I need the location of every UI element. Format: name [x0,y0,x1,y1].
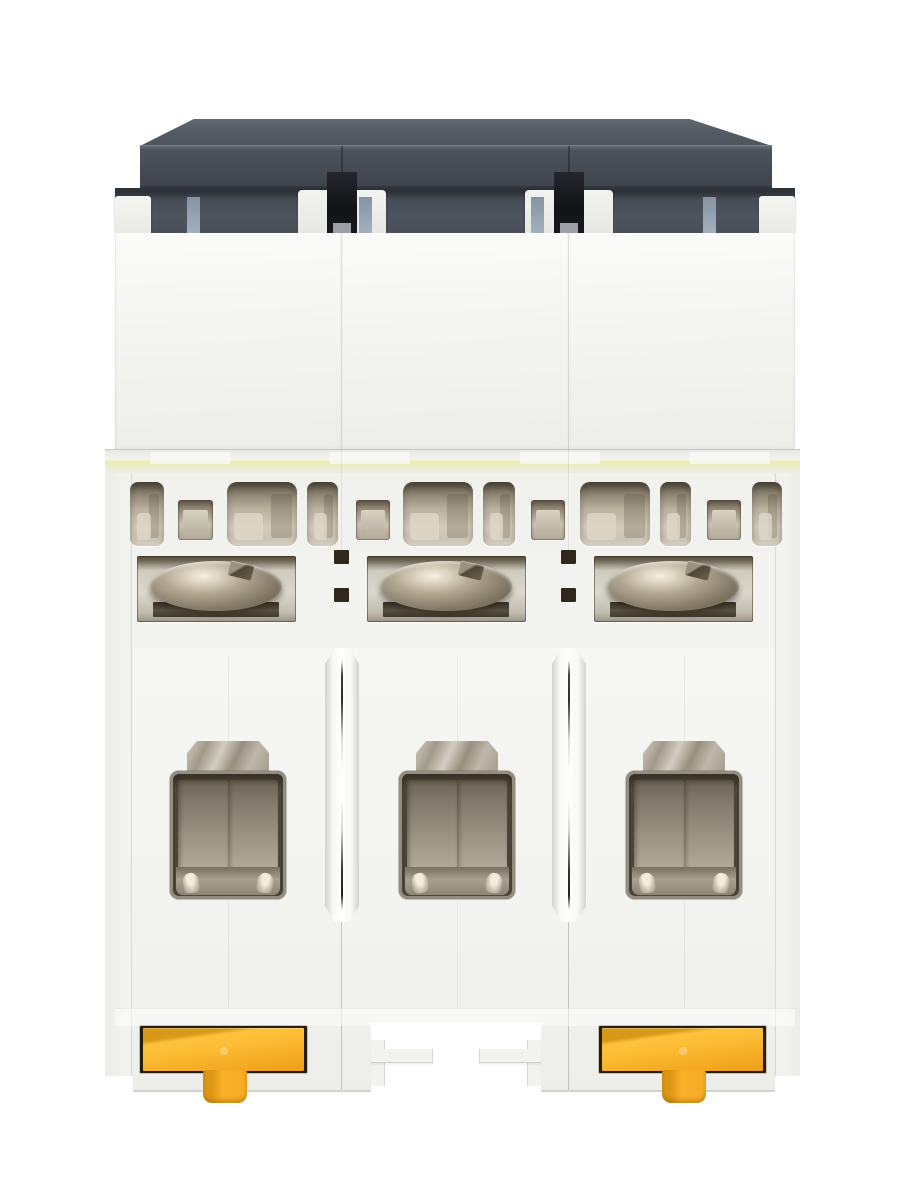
din-clip-left [143,1028,304,1071]
alignment-tab [359,197,372,233]
rail-end-left [105,1076,133,1116]
slot-opening-medium [660,482,691,546]
terminal-screw-head [150,561,282,611]
mold-seam [228,655,229,741]
square-opening [531,500,565,540]
terminal-screw-head [380,561,512,611]
ledge-tab [150,452,230,464]
top-cover-bar [140,145,772,188]
square-opening [178,500,213,540]
terminal-screw-recess [594,556,753,622]
side-rail-right [775,473,800,1076]
din-hook-right [479,1049,541,1063]
slot-opening-large [403,482,473,546]
terminal-cage-base [405,867,509,895]
pole-seam-lower [341,922,342,1090]
slot-opening-medium [752,482,782,546]
top-cover-base [115,188,795,233]
terminal-cage [170,771,286,899]
terminal-cage [626,771,742,899]
housing-corner-tab [115,196,151,233]
terminal-cage-base [632,867,736,895]
terminal-screw-head [607,561,739,611]
ledge-tab [520,452,600,464]
terminal-clamp-plate [187,741,269,774]
side-rail-left [105,473,132,1076]
terminal-cage-base [176,867,280,895]
divider-slot-line [341,660,343,910]
terminal-cage [399,771,515,899]
divider-pin [561,550,576,564]
alignment-tab [703,197,716,233]
mold-seam [228,902,229,1008]
pole-seam-lower [568,922,569,1090]
slot-opening-medium [130,482,164,546]
divider-pin [334,588,349,602]
pole-housing-upper-2 [342,233,569,449]
top-cover-face [140,119,772,146]
rail-end-right [775,1076,800,1116]
divider-pin [334,550,349,564]
mold-seam [684,655,685,741]
terminal-clamp-plate [643,741,725,774]
terminal-screw-recess [367,556,526,622]
mold-seam [457,902,458,1008]
breaker-photo [0,0,900,1200]
slot-opening-large [580,482,650,546]
housing-corner-tab [759,196,795,233]
mold-seam [457,655,458,741]
pole-housing-upper-1 [115,233,342,449]
pole-seam [568,449,569,552]
divider-slot-line [568,660,570,910]
pole-seam [341,449,342,552]
din-hook-right-stem [527,1040,541,1086]
mold-seam [684,902,685,1008]
square-opening [356,500,390,540]
slot-opening-large [227,482,297,546]
din-clip-right-tab [662,1070,706,1103]
din-clip-left-tab [203,1070,247,1103]
ledge-tab [330,452,410,464]
terminal-clamp-plate [416,741,498,774]
alignment-tab [187,197,200,233]
boundary-slot-foot [333,223,351,233]
alignment-tab [531,197,544,233]
pole-housing-upper-3 [569,233,795,449]
slot-opening-medium [483,482,515,546]
boundary-slot-foot [560,223,578,233]
din-hook-left [371,1049,433,1063]
ledge-tab [690,452,770,464]
divider-pin [561,588,576,602]
din-clip-right [602,1028,763,1071]
terminal-screw-recess [137,556,296,622]
slot-opening-medium [307,482,338,546]
square-opening [707,500,741,540]
din-hook-left-stem [371,1040,385,1086]
